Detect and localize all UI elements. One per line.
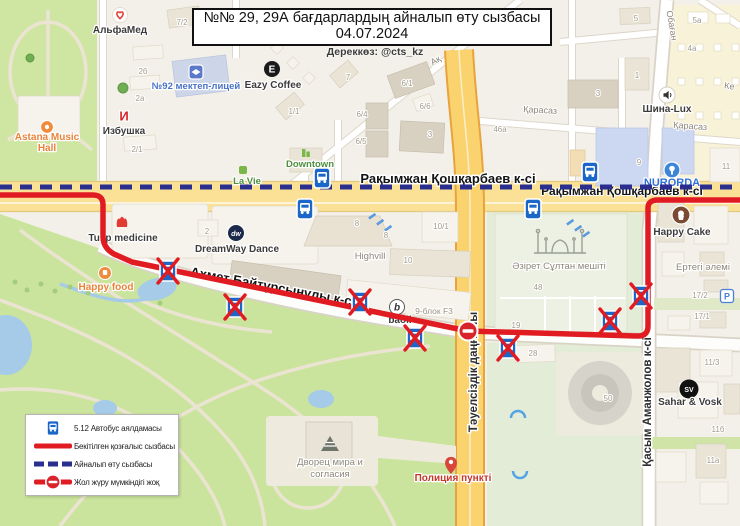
closed-bus-stop — [631, 284, 651, 308]
legend-label: 5.12 Автобус аялдамасы — [74, 424, 162, 433]
building-number: 2б — [138, 67, 147, 76]
building-number: 1 — [635, 71, 640, 80]
bus-stop-icon — [297, 199, 313, 219]
building-number: 10/1 — [433, 222, 449, 231]
building-number: 9 — [637, 158, 642, 167]
legend-label: Айналып өту сызбасы — [74, 460, 152, 469]
eazy-coffee-icon: E — [264, 61, 280, 77]
poi-label-palace-of-peace-2: согласия — [310, 469, 349, 480]
poi-label-alfamed: АльфаМед — [93, 24, 148, 36]
poi-label-sahar-vosk: Sahar & Vosk — [658, 397, 722, 408]
legend-bus-stop-icon — [32, 419, 74, 437]
sahar-vosk-icon: SV — [680, 380, 699, 399]
building-number: 6/5 — [355, 137, 367, 146]
legend-label: Жол жүру мүмкіндігі жоқ — [74, 478, 159, 487]
poi-label-tulip-medicine: Tulip medicine — [88, 233, 158, 244]
legend-label: Бекітілген қозғалыс сызбасы — [74, 442, 175, 451]
svg-text:И: И — [119, 109, 128, 124]
poi-label-astana-music-hall-2: Hall — [38, 143, 57, 154]
building-number: 17/1 — [694, 312, 710, 321]
bus-detour-scheme: E И dw — [0, 0, 740, 526]
building-number: 4а — [688, 44, 697, 53]
nurorda-icon — [664, 162, 680, 178]
tauelsizdik-avenue — [459, 50, 470, 526]
building-number: 11б — [712, 425, 725, 434]
building-number: 6/1 — [401, 79, 413, 88]
building-number: 7 — [346, 73, 351, 82]
svg-text:b: b — [394, 303, 400, 314]
poi-label-happy-cake: Happy Cake — [653, 227, 711, 238]
building-number: 11 — [722, 162, 731, 171]
building-number: 2/1 — [131, 145, 143, 154]
baoli-icon: b — [390, 300, 405, 315]
building-number: 46а — [493, 125, 507, 134]
no-entry-sign-icon — [459, 322, 478, 341]
medical-heart-icon — [113, 8, 128, 23]
poi-label-happy-food: Happy food — [79, 282, 134, 293]
street-label-amanzholov: Қасым Аманжолов к-сі — [642, 337, 654, 467]
building-number: 8 — [355, 219, 360, 228]
closed-bus-stop — [405, 326, 425, 350]
closed-bus-stop — [158, 259, 178, 283]
school-icon — [189, 65, 203, 79]
closed-bus-stop — [600, 309, 620, 333]
building-number: 2а — [136, 94, 145, 103]
svg-text:dw: dw — [231, 231, 241, 238]
legend-no-entry-icon — [32, 473, 74, 491]
eazy-letter: E — [269, 65, 276, 76]
svg-text:P: P — [724, 291, 730, 301]
closed-bus-stop — [498, 336, 518, 360]
happy-cake-icon — [672, 206, 690, 224]
building-number: 50 — [604, 394, 613, 403]
building-number: 3 — [428, 130, 433, 139]
izbushka-icon: И — [119, 109, 128, 124]
building-number: 11а — [707, 456, 720, 465]
building-number: 8 — [384, 231, 389, 240]
legend-row-bus-stop: 5.12 Автобус аялдамасы — [32, 419, 174, 437]
bus-stop-icon — [525, 199, 541, 219]
dreamway-icon: dw — [228, 225, 245, 242]
building-number: 6/6 — [419, 102, 431, 111]
building-number: 28 — [529, 349, 538, 358]
poi-label-eazy-coffee: Eazy Coffee — [245, 80, 302, 91]
poi-label-shina-lux: Шина-Lux — [643, 104, 692, 115]
poi-label-block9-f3: 9-блок F3 — [415, 306, 453, 316]
building-number: 5а — [693, 16, 702, 25]
bus-stop-icon — [582, 162, 598, 182]
closed-bus-stop — [225, 295, 245, 319]
building-number: 48 — [534, 283, 543, 292]
building-number: 6/4 — [356, 110, 368, 119]
happy-food-icon — [99, 267, 112, 280]
building-number: 10 — [404, 256, 413, 265]
scheme-title: №№ 29, 29А бағдарлардың айналып өту сызб… — [194, 11, 550, 27]
svg-text:SV: SV — [684, 387, 694, 394]
legend-row-no-entry: Жол жүру мүмкіндігі жоқ — [32, 473, 174, 491]
scheme-date: 04.07.2024 — [194, 27, 550, 43]
building-number: 1/1 — [288, 107, 300, 116]
poi-label-highvill: Highvill — [355, 251, 386, 262]
building-number: 7/2 — [176, 18, 188, 27]
building-number: 19 — [512, 321, 521, 330]
poi-label-mosque: Әзірет Сұлтан мешіті — [512, 261, 605, 272]
legend-row-detour: Айналып өту сызбасы — [32, 455, 174, 473]
legend-row-approved: Бекітілген қозғалыс сызбасы — [32, 437, 174, 455]
parking-icon: P — [721, 290, 734, 303]
legend-dashed-line-icon — [32, 460, 74, 468]
legend-red-line-icon — [32, 442, 74, 450]
building-number: 17/2 — [692, 291, 708, 300]
source-credit: Дереккөз: @cts_kz — [280, 46, 470, 58]
street-label-partial-2: Ке — [724, 80, 736, 91]
closed-bus-stop — [350, 290, 370, 314]
legend-box: 5.12 Автобус аялдамасы Бекітілген қозғал… — [25, 414, 179, 496]
la-vie-icon — [239, 166, 247, 174]
bus-stop-icon — [314, 168, 330, 188]
poi-label-ertegi-alemi: Ертегі әлемі — [676, 262, 730, 273]
scheme-title-box: №№ 29, 29А бағдарлардың айналып өту сызб… — [192, 8, 552, 46]
poi-label-astana-music-hall: Astana Music — [15, 132, 80, 143]
building-number: 2 — [205, 227, 210, 236]
building-number: 5 — [634, 14, 639, 23]
street-label-karasaz: Қарасаз — [523, 104, 557, 116]
poi-label-izbushka: Избушка — [103, 125, 146, 137]
poi-label-police-point: Полиция пункті — [415, 473, 492, 484]
poi-label-palace-of-peace: Дворец мира и — [297, 457, 363, 468]
poi-label-school92: №92 мектеп-лицей — [152, 81, 241, 92]
speaker-icon — [659, 87, 675, 103]
street-label-koshkarbaev: Рақымжан Қошқарбаев к-сі — [360, 171, 535, 186]
building-number: 11/3 — [705, 358, 721, 367]
building-number: 3 — [596, 89, 601, 98]
poi-label-dreamway-dance: DreamWay Dance — [195, 244, 280, 255]
